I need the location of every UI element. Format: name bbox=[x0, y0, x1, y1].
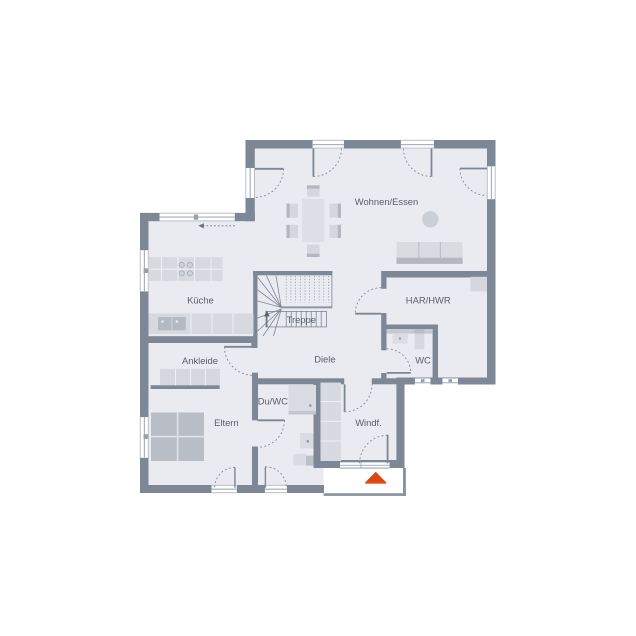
svg-text:Treppe: Treppe bbox=[287, 314, 316, 325]
svg-text:WC: WC bbox=[415, 355, 431, 366]
svg-text:Diele: Diele bbox=[314, 354, 335, 365]
svg-text:Küche: Küche bbox=[187, 295, 214, 306]
svg-text:Ankleide: Ankleide bbox=[182, 355, 218, 366]
svg-text:Du/WC: Du/WC bbox=[258, 396, 288, 407]
svg-text:Eltern: Eltern bbox=[214, 417, 239, 428]
svg-text:HAR/HWR: HAR/HWR bbox=[406, 295, 451, 306]
svg-text:Windf.: Windf. bbox=[355, 417, 382, 428]
svg-text:Wohnen/Essen: Wohnen/Essen bbox=[355, 196, 418, 207]
